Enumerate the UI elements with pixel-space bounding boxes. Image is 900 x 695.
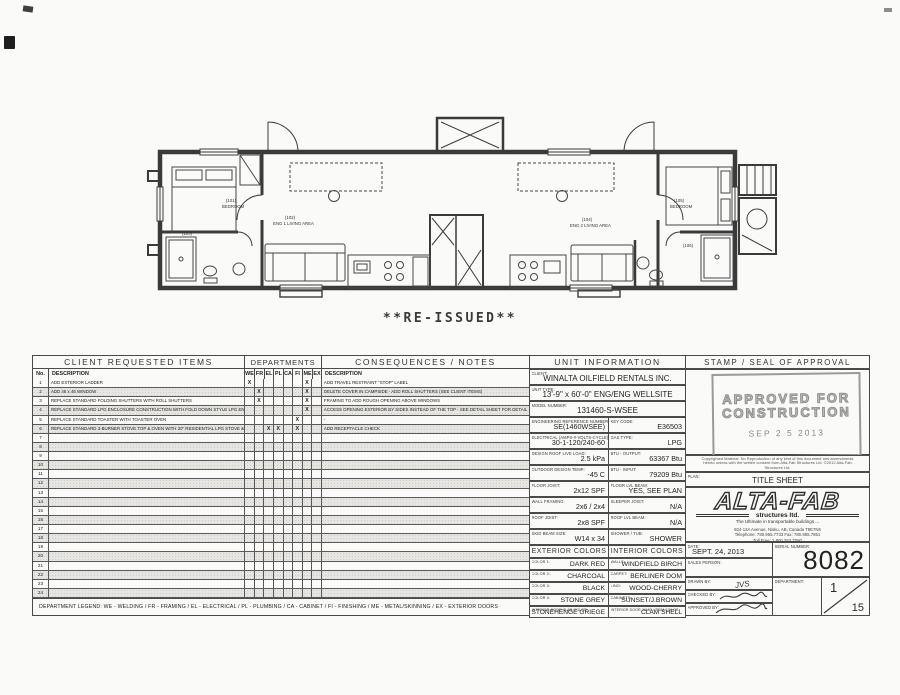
dept-mark-fi <box>293 406 303 414</box>
dept-mark-ex <box>312 416 322 424</box>
unit-info-btu-input: BTU - INPUT: 79209 Btu <box>608 465 686 481</box>
dept-mark-pl <box>274 406 284 414</box>
row-description <box>49 543 245 551</box>
dept-mark-ca <box>284 562 294 570</box>
porch-stairs <box>739 165 776 254</box>
table-row: 6 REPLACE STANDARD 3-BURNER STOVE TOP & … <box>33 425 529 434</box>
table-row: 16 <box>33 516 529 525</box>
dept-mark-we <box>245 498 255 506</box>
row-number: 18 <box>33 534 49 542</box>
dept-mark-fi <box>293 516 303 524</box>
dept-mark-ex <box>312 534 322 542</box>
dept-mark-fr <box>255 489 265 497</box>
dept-mark-we <box>245 479 255 487</box>
row-note <box>322 580 529 588</box>
dept-mark-el <box>264 525 274 533</box>
unit-info-skid-beam: SKID BEAM SIZE: W14 x 34 <box>529 529 609 545</box>
dept-mark-me <box>303 562 313 570</box>
row-note <box>322 434 529 442</box>
dept-mark-me <box>303 498 313 506</box>
dept-mark-pl <box>274 525 284 533</box>
dept-mark-fr <box>255 379 265 387</box>
dept-mark-pl <box>274 443 284 451</box>
dept-mark-pl <box>274 498 284 506</box>
unit-info-electrical: ELECTRICAL (AMPS-#-VOLTS-CYCLE): 30-1-12… <box>529 433 609 449</box>
dept-mark-fr <box>255 580 265 588</box>
dept-mark-me: X <box>303 406 313 414</box>
row-number: 9 <box>33 452 49 460</box>
row-note <box>322 489 529 497</box>
dept-mark-pl <box>274 507 284 515</box>
dept-mark-we <box>245 571 255 579</box>
dept-mark-fr <box>255 479 265 487</box>
drawn-by-cell: DRAWN BY: JVS <box>685 577 773 590</box>
company-address: 604-13A Avenue, Nisku, AB, Canada T9E7N6… <box>692 527 863 543</box>
row-note: ACCESS OPENING EXTERIOR BY SIDES INSTEAD… <box>322 406 529 414</box>
dept-mark-pl <box>274 571 284 579</box>
color3-cell: COLOR 3: BLACK <box>529 582 609 594</box>
dept-mark-ca <box>284 452 294 460</box>
row-note <box>322 525 529 533</box>
row-number: 24 <box>33 589 49 597</box>
dept-mark-el <box>264 589 274 597</box>
scan-artifact-left-square <box>4 36 15 49</box>
sales-person-cell: SALES PERSON: <box>685 558 773 577</box>
row-description <box>49 525 245 533</box>
dept-mark-me <box>303 525 313 533</box>
table-row: 14 <box>33 498 529 507</box>
row-description <box>49 498 245 506</box>
dept-mark-el <box>264 552 274 560</box>
page-number-box: 1 15 <box>821 577 870 616</box>
table-row: 1 ADD EXTERIOR LADDER X X ADD TRAVEL RES… <box>33 379 529 388</box>
sink-left <box>233 263 245 275</box>
unit-info-floor-lvl-beam: FLOOR LVL BEAM: YES, SEE PLAN <box>608 481 686 497</box>
dept-mark-el <box>264 543 274 551</box>
model-number-value: 131460-S-WSEE <box>530 406 685 415</box>
row-number: 23 <box>33 580 49 588</box>
dept-mark-fi <box>293 397 303 405</box>
row-number: 5 <box>33 416 49 424</box>
dept-mark-fi <box>293 589 303 597</box>
dept-mark-pl <box>274 434 284 442</box>
dept-mark-fi <box>293 580 303 588</box>
unit-info-title: UNIT INFORMATION <box>529 355 686 369</box>
dept-mark-fr <box>255 406 265 414</box>
dept-mark-ca <box>284 416 294 424</box>
row-description <box>49 479 245 487</box>
dept-mark-ex <box>312 525 322 533</box>
dept-mark-me <box>303 461 313 469</box>
dept-mark-fr <box>255 525 265 533</box>
row-description <box>49 516 245 524</box>
unit-info-unit-type: UNIT TYPE: 13'-9" x 60'-0" ENG/ENG WELLS… <box>529 385 686 401</box>
shower-right <box>701 235 733 281</box>
row-description <box>49 552 245 560</box>
dept-mark-el <box>264 470 274 478</box>
dept-mark-fi <box>293 534 303 542</box>
client-items-title: CLIENT REQUESTED ITEMS <box>32 355 245 369</box>
dept-mark-el <box>264 580 274 588</box>
dept-mark-we <box>245 589 255 597</box>
row-number: 11 <box>33 470 49 478</box>
dept-mark-ex <box>312 397 322 405</box>
reissued-note: **RE-ISSUED** <box>330 311 570 326</box>
dept-mark-ex <box>312 571 322 579</box>
row-description: REPLACE STANDARD TOASTER WITH TOASTER OV… <box>49 416 245 424</box>
dept-mark-fi: X <box>293 425 303 433</box>
dept-mark-el: X <box>264 425 274 433</box>
dept-mark-we <box>245 552 255 560</box>
dept-mark-ex <box>312 434 322 442</box>
table-row: 19 <box>33 543 529 552</box>
dept-mark-me <box>303 425 313 433</box>
color4-cell: COLOR 4: STONE GREY <box>529 594 609 606</box>
dept-mark-ca <box>284 379 294 387</box>
unit-info-roof-joist: ROOF JOIST: 2x8 SPF <box>529 513 609 529</box>
table-row: 7 <box>33 434 529 443</box>
dept-mark-me <box>303 580 313 588</box>
dept-mark-ca <box>284 543 294 551</box>
dept-mark-we <box>245 507 255 515</box>
row-note <box>322 479 529 487</box>
dept-mark-fi <box>293 507 303 515</box>
dept-mark-el <box>264 479 274 487</box>
approval-title: STAMP / SEAL OF APPROVAL <box>685 355 870 369</box>
table-row: 8 <box>33 443 529 452</box>
row-note <box>322 470 529 478</box>
dept-mark-me <box>303 434 313 442</box>
dept-mark-ex <box>312 552 322 560</box>
dept-mark-ca <box>284 534 294 542</box>
dept-mark-fi <box>293 562 303 570</box>
closet-left <box>240 155 260 185</box>
dept-mark-me: X <box>303 379 313 387</box>
table-row: 18 <box>33 534 529 543</box>
row-number: 3 <box>33 397 49 405</box>
row-number: 8 <box>33 443 49 451</box>
copyright-cell: Copyrighted Material. No Reproduction of… <box>685 455 870 472</box>
row-note: DELETE COVER IN CAMPSIDE - ADD ROLL SHUT… <box>322 388 529 396</box>
row-note <box>322 562 529 570</box>
checked-by-signature <box>718 591 768 602</box>
row-description: REPLACE STANDARD 3-BURNER STOVE TOP & OV… <box>49 425 245 433</box>
dept-mark-ex <box>312 543 322 551</box>
dept-mark-me <box>303 571 313 579</box>
dept-mark-fr: X <box>255 397 265 405</box>
dept-mark-fr <box>255 507 265 515</box>
dept-mark-pl <box>274 397 284 405</box>
dept-mark-we <box>245 434 255 442</box>
approved-by-cell: APPROVED BY: <box>685 603 773 616</box>
drawn-by-initials: JVS <box>735 579 751 590</box>
dept-mark-we <box>245 470 255 478</box>
dept-mark-ca <box>284 461 294 469</box>
dept-mark-pl <box>274 461 284 469</box>
cabinets-color-cell: CABINETS: SUNSET/J.BROWN <box>608 594 686 606</box>
couch-right <box>571 245 633 281</box>
walls-color-cell: WALLS: WINDFIELD BIRCH <box>608 558 686 570</box>
dept-mark-fr <box>255 534 265 542</box>
bed-right <box>666 167 732 225</box>
unit-info-btu-output: BTU - OUTPUT: 63367 Btu <box>608 449 686 465</box>
dept-mark-el <box>264 498 274 506</box>
serial-number-cell: SERIAL NUMBER: 8082 <box>772 542 870 577</box>
drawing-sheet: (101) BEDROOM (103) (102) ENG 1 LIVING A… <box>0 0 900 695</box>
dept-mark-fr <box>255 470 265 478</box>
dept-mark-el <box>264 388 274 396</box>
dept-mark-me <box>303 534 313 542</box>
logo-cell: ALTA-FAB structures ltd. The Ultimate in… <box>685 487 870 542</box>
interior-colors-header: INTERIOR COLORS <box>608 545 686 558</box>
row-note <box>322 461 529 469</box>
dept-mark-fi: X <box>293 416 303 424</box>
dept-mark-pl <box>274 388 284 396</box>
date-cell: DATE: SEPT. 24, 2013 <box>685 542 773 558</box>
dept-mark-we <box>245 452 255 460</box>
carpet-color-cell: CARPET: BERLINER DOM <box>608 570 686 582</box>
row-description <box>49 571 245 579</box>
color1-cell: COLOR 1: DARK RED <box>529 558 609 570</box>
plan-cell: PLAN: TITLE SHEET <box>685 472 870 487</box>
dept-mark-we <box>245 388 255 396</box>
unit-info-wall-framing: WALL FRAMING: 2x6 / 2x4 <box>529 497 609 513</box>
row-number: 17 <box>33 525 49 533</box>
row-number: 15 <box>33 507 49 515</box>
page-total: 15 <box>852 602 864 614</box>
dept-mark-me: X <box>303 397 313 405</box>
dept-mark-pl <box>274 534 284 542</box>
row-note: FRAMING TO ADD ROUGH OPENING ABOVE WINDO… <box>322 397 529 405</box>
row-note: ADD TRAVEL RESTRAINT "STOP" LABEL <box>322 379 529 387</box>
dept-mark-pl <box>274 479 284 487</box>
shower-left <box>166 237 196 281</box>
department-cell: DEPARTMENT: <box>772 577 822 616</box>
row-number: 10 <box>33 461 49 469</box>
dept-mark-pl <box>274 489 284 497</box>
unit-info-floor-joist: FLOOR JOIST: 2x12 SPF <box>529 481 609 497</box>
table-row: 4 REPLACE STANDARD LPG ENCLOSURE CONSTRU… <box>33 406 529 415</box>
int-door-trim-cell: INTERIOR DOOR JAMB / TRIM COLOR: CLAM SH… <box>608 606 686 618</box>
dept-mark-me <box>303 589 313 597</box>
stamp-date: SEP 2 5 2013 <box>749 427 825 438</box>
exterior-colors-header: EXTERIOR COLORS <box>529 545 609 558</box>
dept-mark-ca <box>284 580 294 588</box>
dept-mark-el <box>264 416 274 424</box>
dept-mark-el <box>264 379 274 387</box>
row-description <box>49 461 245 469</box>
row-description <box>49 489 245 497</box>
row-note <box>322 589 529 597</box>
dept-mark-pl <box>274 416 284 424</box>
dept-mark-me <box>303 552 313 560</box>
row-note <box>322 543 529 551</box>
row-description: ADD EXTERIOR LADDER <box>49 379 245 387</box>
approval-stamp: APPROVED FOR CONSTRUCTION SEP 2 5 2013 <box>711 372 861 458</box>
table-row: 10 <box>33 461 529 470</box>
dept-mark-me <box>303 489 313 497</box>
client-items-table: 1 ADD EXTERIOR LADDER X X ADD TRAVEL RES… <box>32 379 530 598</box>
row-note <box>322 516 529 524</box>
dept-mark-me <box>303 416 313 424</box>
dept-mark-ex <box>312 379 322 387</box>
dept-mark-pl <box>274 470 284 478</box>
table-row: 13 <box>33 489 529 498</box>
dept-mark-we <box>245 443 255 451</box>
dept-mark-ca <box>284 443 294 451</box>
dept-mark-ca <box>284 406 294 414</box>
row-description <box>49 434 245 442</box>
row-note <box>322 507 529 515</box>
room-label: (102) <box>285 215 296 220</box>
scan-artifact-top-left <box>23 5 34 12</box>
dept-mark-ex <box>312 443 322 451</box>
dept-mark-fr <box>255 571 265 579</box>
dept-mark-fr <box>255 562 265 570</box>
unit-info-roof-load: DESIGN ROOF LIVE LOAD: 2.5 kPa <box>529 449 609 465</box>
dept-mark-ca <box>284 507 294 515</box>
dept-mark-we <box>245 525 255 533</box>
dept-mark-fr <box>255 452 265 460</box>
row-description <box>49 534 245 542</box>
dept-mark-ca <box>284 489 294 497</box>
consequences-title: CONSEQUENCES / NOTES <box>321 355 530 369</box>
row-description <box>49 452 245 460</box>
row-number: 4 <box>33 406 49 414</box>
table-row: 5 REPLACE STANDARD TOASTER WITH TOASTER … <box>33 416 529 425</box>
utility-protrusion <box>437 118 503 152</box>
dept-mark-we <box>245 562 255 570</box>
dept-mark-fi <box>293 489 303 497</box>
unit-info-eng-ref: ENGINEERING REFERENCE NUMBER: SE(1460WSE… <box>529 417 609 433</box>
dept-mark-el <box>264 434 274 442</box>
row-number: 21 <box>33 562 49 570</box>
dept-mark-el <box>264 461 274 469</box>
checked-by-cell: CHECKED BY: <box>685 590 773 603</box>
table-row: 2 ADD 46 x 46 WINDOW X X DELETE COVER IN… <box>33 388 529 397</box>
dept-mark-fi <box>293 461 303 469</box>
dept-mark-ca <box>284 552 294 560</box>
table-row: 21 <box>33 562 529 571</box>
dept-mark-we <box>245 543 255 551</box>
mechanical-core <box>430 215 483 288</box>
row-number: 7 <box>33 434 49 442</box>
dept-mark-me <box>303 470 313 478</box>
row-note <box>322 498 529 506</box>
room-label: ENG 2 LIVING AREA <box>570 223 611 228</box>
dept-mark-me <box>303 516 313 524</box>
dept-mark-ex <box>312 388 322 396</box>
row-number: 6 <box>33 425 49 433</box>
unit-info-design-temp: OUTDOOR DESIGN TEMP.: -45 C <box>529 465 609 481</box>
dept-mark-me <box>303 443 313 451</box>
int-door-slab-cell: INTERIOR DOOR SLAB COLOR: STONEHENGE GRI… <box>529 606 609 618</box>
room-label: (105) <box>674 198 685 203</box>
dept-mark-fi <box>293 552 303 560</box>
row-description <box>49 443 245 451</box>
couch-left <box>265 244 345 281</box>
dept-mark-me: X <box>303 388 313 396</box>
dept-mark-ca <box>284 388 294 396</box>
room-label: (106) <box>683 243 694 248</box>
sink-right <box>637 257 649 269</box>
dept-mark-we <box>245 425 255 433</box>
room-label: (103) <box>182 231 193 236</box>
table-row: 22 <box>33 571 529 580</box>
room-labels: (101) BEDROOM (103) (102) ENG 1 LIVING A… <box>182 198 694 248</box>
desk-left <box>290 163 382 202</box>
color2-cell: COLOR 2: CHARCOAL <box>529 570 609 582</box>
dept-mark-me <box>303 479 313 487</box>
dept-mark-fi <box>293 388 303 396</box>
dept-mark-el <box>264 452 274 460</box>
dept-mark-pl <box>274 543 284 551</box>
dept-mark-fi <box>293 379 303 387</box>
row-description: ADD 46 x 46 WINDOW <box>49 388 245 396</box>
table-row: 15 <box>33 507 529 516</box>
dept-mark-fi <box>293 479 303 487</box>
dept-mark-fr <box>255 425 265 433</box>
client-value: WINALTA OILFIELD RENTALS INC. <box>530 374 685 383</box>
dept-mark-fr <box>255 516 265 524</box>
toilet-right <box>650 270 664 286</box>
dept-mark-we <box>245 534 255 542</box>
dept-mark-we <box>245 461 255 469</box>
row-description <box>49 589 245 597</box>
dept-mark-pl <box>274 379 284 387</box>
room-label: (101) <box>226 198 237 203</box>
row-note <box>322 452 529 460</box>
dept-mark-el <box>264 516 274 524</box>
dept-mark-ex <box>312 498 322 506</box>
dept-mark-pl <box>274 580 284 588</box>
dept-mark-ca <box>284 589 294 597</box>
dept-mark-ca <box>284 516 294 524</box>
dept-mark-ex <box>312 406 322 414</box>
dept-mark-we <box>245 406 255 414</box>
dept-mark-fr <box>255 443 265 451</box>
table-row: 3 REPLACE STANDARD FOLDING SHUTTERS WITH… <box>33 397 529 406</box>
furniture <box>166 155 733 297</box>
dept-mark-fi <box>293 498 303 506</box>
dept-mark-me <box>303 543 313 551</box>
dept-mark-ca <box>284 434 294 442</box>
row-number: 20 <box>33 552 49 560</box>
dept-mark-ex <box>312 489 322 497</box>
unit-info-sleeper-joist: SLEEPER JOIST: N/A <box>608 497 686 513</box>
page-current: 1 <box>830 580 837 595</box>
dept-mark-fi <box>293 434 303 442</box>
row-note <box>322 571 529 579</box>
windows <box>157 149 738 291</box>
unit-type-value: 13'-9" x 60'-0" ENG/ENG WELLSITE <box>530 390 685 399</box>
row-description: REPLACE STANDARD FOLDING SHUTTERS WITH R… <box>49 397 245 405</box>
room-label: BEDROOM <box>222 204 245 209</box>
row-note <box>322 552 529 560</box>
table-row: 20 <box>33 552 529 561</box>
row-number: 19 <box>33 543 49 551</box>
dept-mark-ex <box>312 470 322 478</box>
row-note <box>322 443 529 451</box>
dept-mark-ex <box>312 479 322 487</box>
row-note <box>322 534 529 542</box>
serial-number: 8082 <box>803 545 865 576</box>
dept-mark-we <box>245 580 255 588</box>
table-row: 9 <box>33 452 529 461</box>
dept-mark-ex <box>312 461 322 469</box>
dept-mark-el <box>264 571 274 579</box>
room-label: ENG 1 LIVING AREA <box>273 221 314 226</box>
